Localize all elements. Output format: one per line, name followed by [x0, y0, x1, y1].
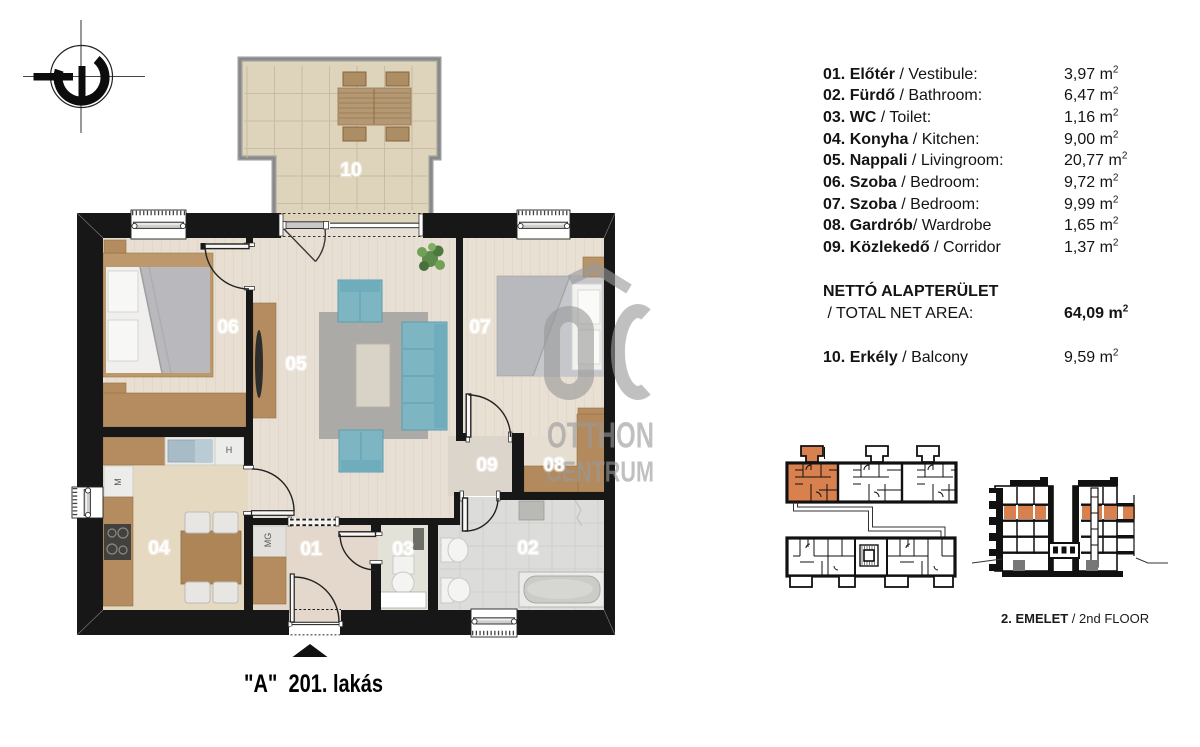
svg-text:06: 06 — [217, 317, 238, 338]
svg-text:05: 05 — [285, 354, 307, 375]
svg-text:07: 07 — [469, 317, 490, 338]
svg-text:08: 08 — [543, 455, 564, 476]
svg-text:M: M — [113, 478, 123, 486]
svg-text:04: 04 — [148, 538, 170, 559]
svg-text:OTTHON: OTTHON — [547, 415, 654, 456]
svg-text:H: H — [226, 445, 233, 455]
svg-text:MG: MG — [263, 533, 273, 548]
svg-text:10: 10 — [340, 160, 361, 181]
svg-text:02: 02 — [517, 538, 538, 559]
svg-text:09: 09 — [476, 455, 497, 476]
svg-text:01: 01 — [300, 539, 322, 560]
svg-text:03: 03 — [392, 539, 413, 560]
